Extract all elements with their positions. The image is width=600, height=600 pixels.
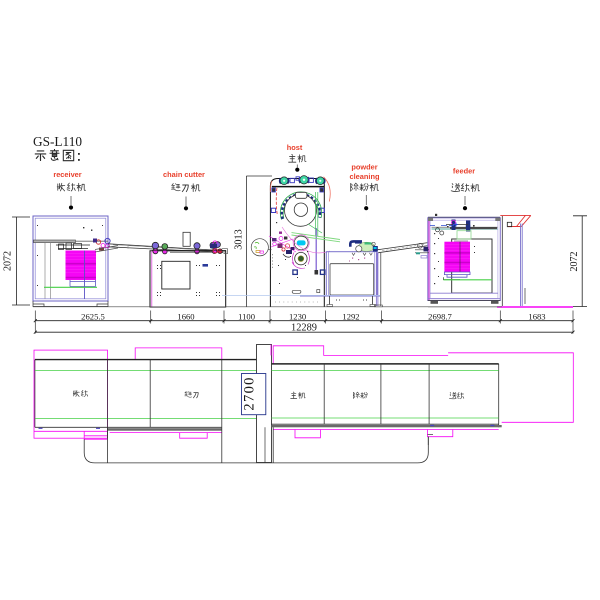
svg-text:1100: 1100 [238,311,255,321]
svg-text:cleaning: cleaning [350,172,380,181]
svg-text:3013: 3013 [234,229,245,249]
svg-text:powder: powder [351,163,377,172]
svg-text:2072: 2072 [569,252,580,272]
svg-text:receiver: receiver [53,170,81,179]
svg-text:12289: 12289 [291,323,317,334]
svg-text:GS-L110: GS-L110 [33,134,82,149]
svg-text:1292: 1292 [342,311,359,321]
svg-text:2698.7: 2698.7 [428,311,452,321]
svg-text:chain cutter: chain cutter [163,170,205,179]
svg-text:host: host [287,143,303,152]
svg-text:2700: 2700 [242,378,258,411]
svg-text:2072: 2072 [3,251,14,271]
svg-text:1660: 1660 [177,311,194,321]
svg-text:feeder: feeder [453,167,475,176]
svg-text:2625.5: 2625.5 [81,311,105,321]
svg-text:1683: 1683 [528,311,545,321]
svg-text:1230: 1230 [289,311,306,321]
